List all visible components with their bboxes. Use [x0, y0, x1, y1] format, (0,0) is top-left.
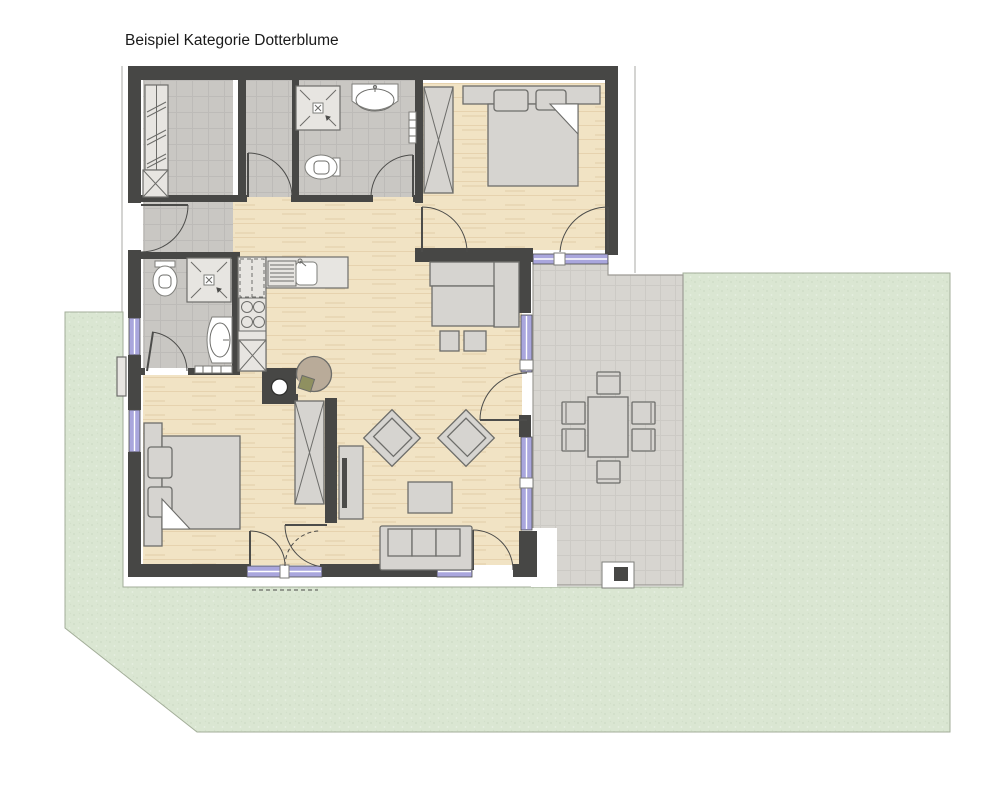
pillow: [148, 447, 172, 478]
wall-bedroom1-south: [415, 248, 533, 262]
wall-bath2-south-a: [135, 368, 145, 375]
wall-east: [605, 66, 618, 255]
dining-chair: [562, 402, 585, 424]
window-bedroom1-south-glazing: [533, 253, 608, 265]
wall-hall-south-b: [291, 195, 373, 202]
bedroom2-bed: [144, 423, 240, 546]
ottoman: [440, 331, 459, 351]
shower-1: [296, 86, 340, 130]
pillow: [494, 90, 528, 111]
washbasin-2: [207, 317, 232, 363]
dining-chair: [597, 372, 620, 394]
bedroom-1-furniture: [424, 86, 600, 193]
wall-north: [128, 66, 618, 80]
window-living-east-lower: [520, 437, 533, 530]
wall-west-upper: [128, 80, 141, 203]
window-living-east-upper: [520, 315, 533, 372]
wall-glass-pier: [519, 415, 531, 437]
dining-chair: [562, 429, 585, 451]
window-french-door-south: [247, 565, 322, 578]
sofa: [380, 526, 472, 570]
storage-room-floor: [246, 80, 292, 197]
exterior-fixture: [117, 357, 126, 396]
wall-hall-south-c: [413, 195, 423, 202]
window-bath2-west: [129, 318, 140, 355]
dining-chair: [632, 402, 655, 424]
wall-west-mid2: [128, 355, 141, 410]
wood-stove: [272, 379, 288, 395]
kitchen-tall-cabinet-x: [239, 340, 266, 371]
tv-sideboard: [339, 446, 363, 519]
tv: [342, 458, 347, 508]
dining-chair: [597, 461, 620, 483]
toilet-2: [153, 261, 177, 296]
dining-table: [588, 397, 628, 457]
bedroom2-wardrobe: [295, 401, 324, 504]
radiator-2: [195, 366, 232, 373]
wall-hall-storage: [238, 80, 246, 197]
wall-bedroom2-living: [325, 398, 337, 523]
coffee-table: [408, 482, 452, 513]
shower-2: [187, 258, 231, 302]
entrance-cabinet-x: [143, 170, 168, 197]
dining-chair: [632, 429, 655, 451]
entrance-wardrobe: [143, 85, 168, 197]
floor-plan: Beispiel Kategorie Dotterblume: [0, 0, 1000, 795]
wall-west-mid1: [128, 250, 141, 318]
window-bedroom2-west: [129, 410, 140, 452]
bedroom1-wardrobe: [424, 87, 453, 193]
wall-west-lower: [128, 452, 141, 577]
corner-sofa: [430, 262, 519, 327]
radiator-1: [409, 112, 416, 143]
ottoman: [464, 331, 486, 351]
wall-south-west: [128, 564, 250, 577]
pergola-post: [614, 567, 628, 581]
toilet-1: [305, 155, 340, 179]
page-title: Beispiel Kategorie Dotterblume: [125, 32, 339, 49]
wall-se-corner: [519, 531, 537, 577]
